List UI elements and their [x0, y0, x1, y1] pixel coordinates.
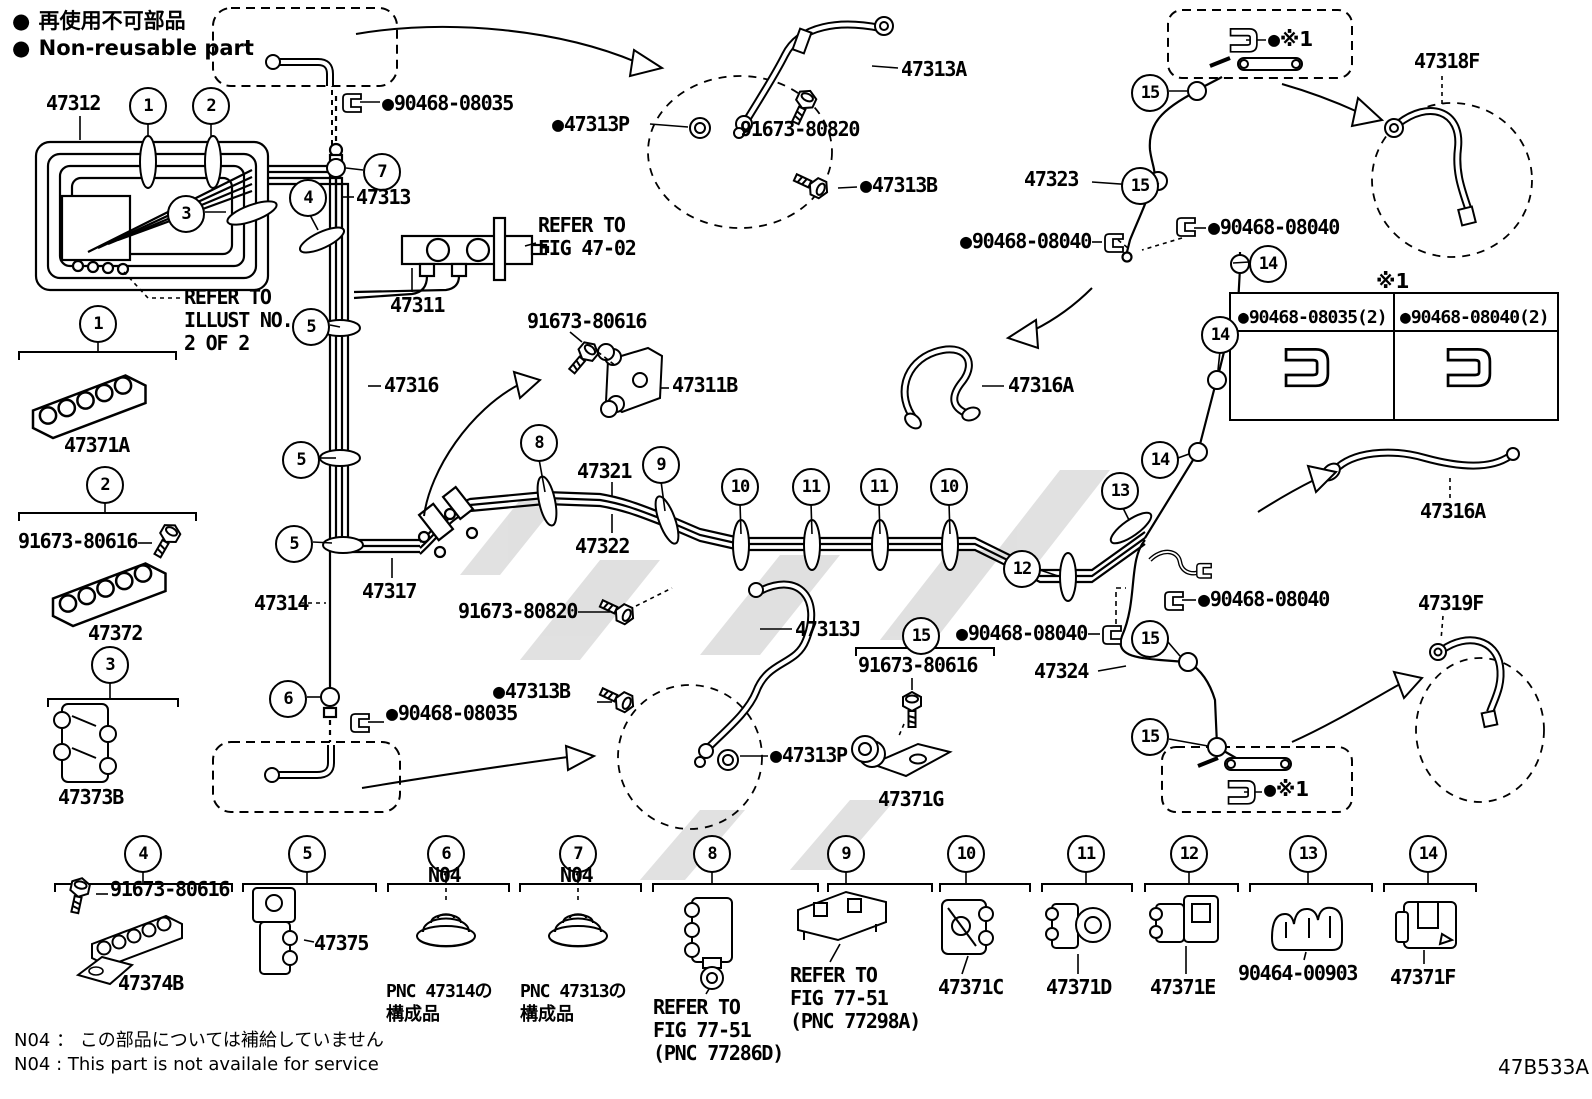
part-glyphs [33, 376, 1456, 990]
nonreusable-bullet-icon: ● [1268, 27, 1279, 51]
callout-15: 15 [902, 617, 940, 655]
part-label-47313p: ●47313P [770, 744, 847, 767]
callout-12: 12 [1170, 835, 1208, 873]
part-label-90468-08040-2: ●90468-08040(2) [1400, 306, 1549, 329]
part-label-n04: N04 [428, 864, 461, 887]
part-label-n04: N04 [560, 864, 593, 887]
part-label-91673-80616: 91673-80616 [110, 878, 229, 901]
callout-14: 14 [1249, 245, 1287, 283]
part-label-47313j: 47313J [795, 618, 860, 641]
callout-10: 10 [930, 468, 968, 506]
callout-10: 10 [721, 468, 759, 506]
doc-code: 47B533A [1498, 1056, 1589, 1079]
part-label-47313b: ●47313B [493, 680, 570, 703]
callout-11: 11 [1067, 835, 1105, 873]
callout-5: 5 [292, 308, 330, 346]
ref-x1-bottom: ●※1 [1264, 778, 1309, 801]
part-label-91673-80616: 91673-80616 [858, 654, 977, 677]
part-label-90468-08040: ●90468-08040 [1198, 588, 1329, 611]
part-label-47313p: ●47313P [552, 113, 629, 136]
nonreusable-bullet-icon: ● [552, 112, 563, 136]
part-label-47321: 47321 [577, 460, 631, 483]
part-label-91673-80820: 91673-80820 [740, 118, 859, 141]
callout-4: 4 [289, 179, 327, 217]
part-label-91673-80616: 91673-80616 [18, 530, 137, 553]
part-label-47374b: 47374B [118, 972, 183, 995]
part-label-47371c: 47371C [938, 976, 1003, 999]
callout-2: 2 [192, 87, 230, 125]
callout-3: 3 [91, 646, 129, 684]
nonreusable-bullet-icon: ● [956, 621, 967, 645]
part-label-90468-08040: ●90468-08040 [1208, 216, 1339, 239]
callout-10: 10 [947, 835, 985, 873]
callout-9: 9 [827, 835, 865, 873]
callout-8: 8 [520, 424, 558, 462]
ref-fig-47-02: REFER TOFIG 47-02 [538, 214, 636, 260]
part-label-90468-08040: ●90468-08040 [956, 622, 1087, 645]
part-label-47319f: 47319F [1418, 592, 1483, 615]
parts-diagram-canvas: 1 2 3 4 7 5 5 5 6 8 9 10 11 11 10 13 12 … [0, 0, 1592, 1099]
part-label-47371f: 47371F [1390, 966, 1455, 989]
part-label-47373b: 47373B [58, 786, 123, 809]
callout-11: 11 [860, 468, 898, 506]
footnote-jp: N04 ： この部品については補給していません [14, 1026, 384, 1052]
nonreusable-bullet-icon: ● [1208, 215, 1219, 239]
part-label-47311: 47311 [390, 294, 444, 317]
ref-x1-table: ※1 [1376, 270, 1409, 293]
nonreusable-bullet-icon: ● [386, 701, 397, 725]
callout-3: 3 [167, 195, 205, 233]
callout-12: 12 [1003, 550, 1041, 588]
callout-15: 15 [1121, 167, 1159, 205]
callout-5: 5 [275, 525, 313, 563]
ref-fig-77-51-b: REFER TOFIG 77-51(PNC 77298A) [790, 964, 920, 1033]
callout-5: 5 [288, 835, 326, 873]
part-label-47318f: 47318F [1414, 50, 1479, 73]
part-label-47375: 47375 [314, 932, 368, 955]
callout-14: 14 [1201, 316, 1239, 354]
part-label-47371a: 47371A [64, 434, 129, 457]
nonreusable-bullet-icon: ● [1264, 777, 1275, 801]
callout-1: 1 [129, 87, 167, 125]
callout-13: 13 [1101, 472, 1139, 510]
tube-runs [268, 77, 1240, 758]
nonreusable-bullet-icon: ● [1238, 307, 1248, 328]
part-label-47311b: 47311B [672, 374, 737, 397]
nonreusable-bullet-icon: ● [382, 91, 393, 115]
part-label-47324: 47324 [1034, 660, 1088, 683]
callout-15: 15 [1131, 620, 1169, 658]
callout-14: 14 [1141, 441, 1179, 479]
part-label-47316a: 47316A [1420, 500, 1485, 523]
part-label-91673-80820: 91673-80820 [458, 600, 577, 623]
part-label-47316a: 47316A [1008, 374, 1073, 397]
ref-pnc-47314: PNC 47314の構成品 [386, 980, 492, 1026]
callout-2: 2 [86, 466, 124, 504]
part-label-90468-08035: ●90468-08035 [382, 92, 513, 115]
part-label-47313a: 47313A [901, 58, 966, 81]
nonreusable-bullet-icon: ● [1198, 587, 1209, 611]
part-label-47371d: 47371D [1046, 976, 1111, 999]
ref-pnc-47313: PNC 47313の構成品 [520, 980, 626, 1026]
legend-nonreusable-jp: ● 再使用不可部品 [12, 10, 186, 33]
nonreusable-bullet-icon: ● [12, 9, 30, 33]
part-label-47313b: ●47313B [860, 174, 937, 197]
nonreusable-bullet-icon: ● [1400, 307, 1410, 328]
callout-15: 15 [1131, 74, 1169, 112]
callout-5: 5 [282, 441, 320, 479]
part-label-47322: 47322 [575, 535, 629, 558]
nonreusable-bullet-icon: ● [960, 229, 971, 253]
callout-14: 14 [1409, 835, 1447, 873]
callout-9: 9 [642, 446, 680, 484]
callout-4: 4 [124, 835, 162, 873]
nonreusable-bullet-icon: ● [770, 743, 781, 767]
part-label-91673-80616: 91673-80616 [527, 310, 646, 333]
part-label-47323: 47323 [1024, 168, 1078, 191]
footnote-en: N04 : This part is not availale for serv… [14, 1054, 379, 1075]
ref-illust-2of2: REFER TOILLUST NO.2 OF 2 [184, 286, 292, 355]
nonreusable-bullet-icon: ● [493, 679, 504, 703]
callout-6: 6 [269, 680, 307, 718]
part-label-47316: 47316 [384, 374, 438, 397]
part-label-90464-00903: 90464-00903 [1238, 962, 1357, 985]
part-label-47312: 47312 [46, 92, 100, 115]
bracket-47311b [598, 344, 662, 417]
part-label-47371e: 47371E [1150, 976, 1215, 999]
callout-8: 8 [693, 835, 731, 873]
callout-15: 15 [1131, 718, 1169, 756]
part-label-47314: 47314 [254, 592, 308, 615]
callout-13: 13 [1289, 835, 1327, 873]
callout-1: 1 [79, 305, 117, 343]
part-label-47317: 47317 [362, 580, 416, 603]
nonreusable-bullet-icon: ● [860, 173, 871, 197]
part-label-90468-08035: ●90468-08035 [386, 702, 517, 725]
ref-x1-top: ●※1 [1268, 28, 1313, 51]
callout-11: 11 [792, 468, 830, 506]
part-label-47313: 47313 [356, 186, 410, 209]
part-label-47371g: 47371G [878, 788, 943, 811]
diagram-line-art [0, 0, 1592, 1099]
ref-fig-77-51-a: REFER TOFIG 77-51(PNC 77286D) [653, 996, 783, 1065]
part-label-47372: 47372 [88, 622, 142, 645]
master-cylinder-47311 [354, 218, 548, 298]
part-label-90468-08035-2: ●90468-08035(2) [1238, 306, 1387, 329]
part-label-90468-08040: ●90468-08040 [960, 230, 1091, 253]
legend-nonreusable-en: ● Non-reusable part [12, 37, 254, 60]
nonreusable-bullet-icon: ● [12, 36, 30, 60]
watermark [460, 470, 1110, 880]
